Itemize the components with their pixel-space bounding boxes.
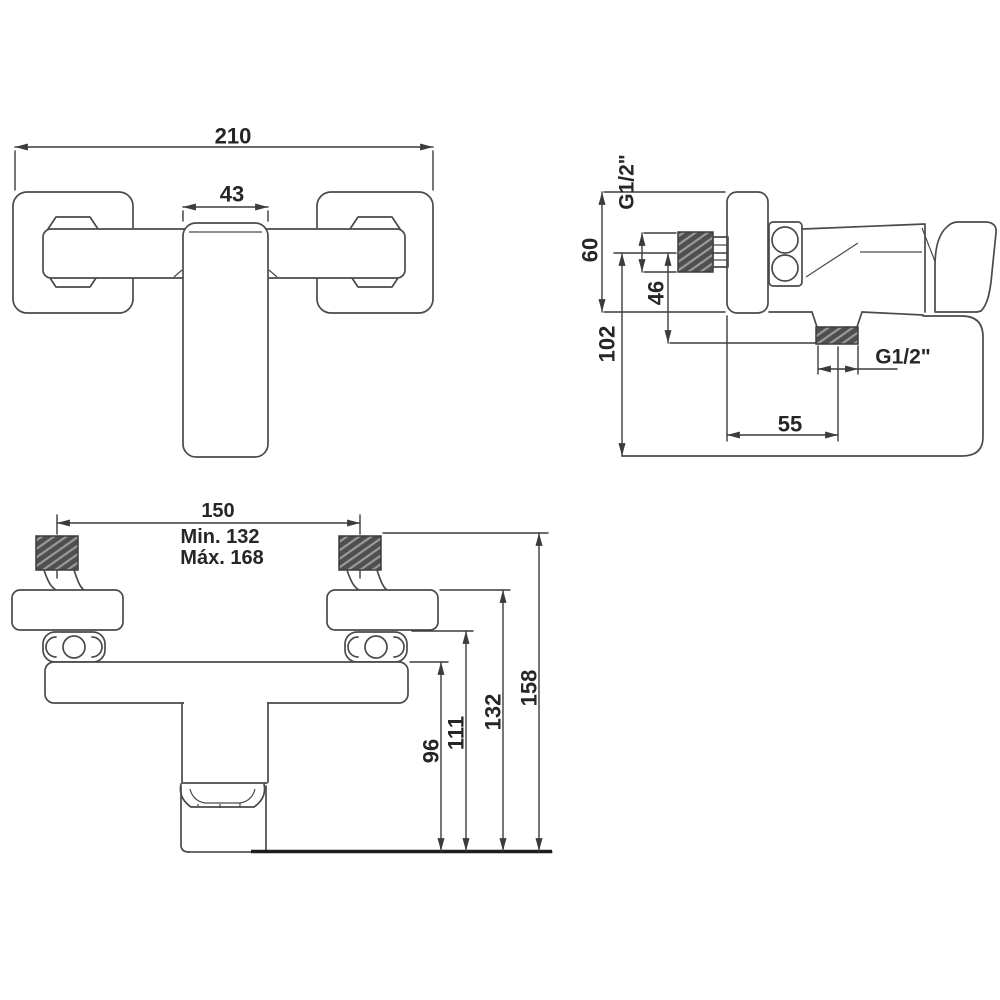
mounted-left-eccentric (44, 570, 84, 590)
dim-body-to-bottom-label: 96 (419, 739, 444, 763)
outlet-thread-label: G1/2" (875, 346, 930, 369)
dim-43-extensions (183, 211, 268, 221)
technical-drawing: 210 43 60 G1/2" 46 (0, 0, 1000, 1000)
dim-wall-to-outlet-label: 55 (778, 412, 802, 437)
dim-thread-to-bottom-label: 158 (517, 670, 542, 707)
side-union-nut (769, 222, 802, 286)
mounted-right-escutcheon (327, 590, 438, 630)
dim-plate-bottom-to-bottom-label: 111 (444, 716, 469, 750)
side-inlet-neck (713, 237, 728, 267)
dim-inlet-centers-label: 150 (201, 500, 234, 522)
dim-overall-width-label: 210 (215, 124, 252, 149)
side-escutcheon (727, 192, 768, 313)
front-handle (183, 223, 268, 457)
dim-axis-to-outlet-label: 46 (644, 281, 669, 305)
mounted-left-escutcheon (12, 590, 123, 630)
side-outlet-stub (812, 312, 862, 327)
side-view: 60 G1/2" 46 102 55 G1/2" (578, 154, 997, 456)
mounted-handle-sides (182, 703, 268, 782)
mounted-view: 150 Min. 132 Máx. 168 96 111 132 158 (12, 500, 552, 852)
dim-handle-width-label: 43 (220, 182, 244, 207)
dim-plate-height-label: 60 (578, 238, 603, 262)
dim-axis-to-bottom-label: 102 (595, 326, 620, 363)
side-outlet-thread (816, 327, 858, 344)
technical-drawing-page: 210 43 60 G1/2" 46 (0, 0, 1000, 1000)
dim-max-label: Máx. 168 (180, 547, 263, 569)
side-lever-head (935, 222, 996, 312)
mounted-right-eccentric (347, 570, 387, 590)
mounted-handle-grip-inner (190, 789, 255, 803)
dim-min-label: Min. 132 (181, 526, 260, 548)
side-inlet-thread (678, 232, 713, 272)
side-body-internal-lines (806, 228, 936, 277)
mounted-left-thread (36, 536, 78, 570)
inlet-thread-label: G1/2" (616, 154, 639, 209)
mounted-right-thread (339, 536, 381, 570)
front-view: 210 43 (13, 124, 433, 458)
dim-plate-top-to-bottom-label: 132 (481, 694, 506, 731)
mounted-bar-handle-overlap (184, 665, 267, 707)
